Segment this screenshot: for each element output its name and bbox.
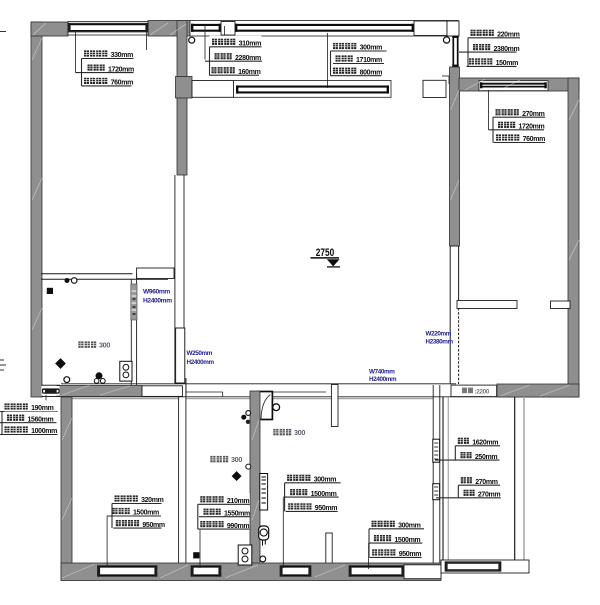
svg-text:W960mm: W960mm	[143, 289, 170, 296]
svg-text::2200: :2200	[475, 388, 490, 395]
svg-text:300: 300	[294, 428, 305, 437]
svg-text:H2400mm: H2400mm	[143, 298, 172, 305]
svg-text:H2400mm: H2400mm	[187, 359, 215, 366]
svg-text:300: 300	[99, 341, 110, 350]
svg-text:H2400mm: H2400mm	[369, 376, 397, 383]
svg-text:300: 300	[231, 455, 242, 464]
svg-text:W250mm: W250mm	[187, 350, 213, 357]
svg-text:W740mm: W740mm	[369, 369, 395, 376]
svg-text:H2380mm: H2380mm	[426, 339, 454, 346]
svg-text:W220mm: W220mm	[426, 331, 452, 338]
